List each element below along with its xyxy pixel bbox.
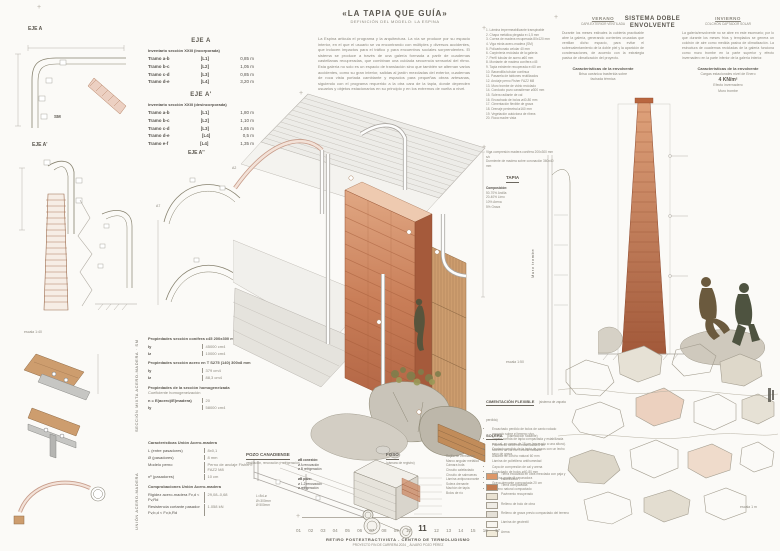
invierno-body: La galería/envolvente no se abre en este… [682, 31, 774, 61]
eje-a1-label: EJE A' [32, 142, 47, 149]
tramo-ref: [L1] [201, 56, 209, 62]
table-rows: Tramo a-b [L1] 0,85 m Tramo b-c [L2] 1,0… [148, 56, 254, 86]
scale-number: 17 [495, 528, 500, 533]
pozo-label: ø refrigeración [298, 486, 344, 491]
page-subtitle: DEFINICIÓN DEL MODELO: LA ESPINA [300, 19, 490, 25]
material-swatch [486, 484, 498, 491]
material-label: Relleno de bolo de obra [501, 502, 535, 507]
scale-number: 16 [483, 528, 488, 533]
solera-item: Pavimento de tierra estabilizada 8 cm [492, 443, 566, 448]
pozo-group2: øB pozo: ø 1-2 renovaciónø refrigeración [298, 477, 344, 491]
material-label: Arena [501, 530, 510, 535]
property-key: Iz [148, 351, 199, 357]
property-key: n = E(acero)/E(madera) [148, 398, 199, 404]
table-row: Tramo c-d [L3] 0,85 m [148, 72, 254, 78]
table-title: EJE A [148, 38, 254, 45]
registration-mark: + [37, 4, 41, 11]
table-row: Tramo b-c [L2] 1,05 m [148, 64, 254, 70]
tramo-ref: [L3] [201, 126, 209, 132]
table-row: Tramo d-e [L4] 3,20 m [148, 79, 254, 85]
tramo-ref: [L4] [202, 133, 210, 139]
tramo-name: Tramo b-c [148, 118, 170, 124]
page-title: «LA TAPIA QUE GUÍA» [300, 10, 490, 19]
solera-subtitle: (calefacción radiante) [507, 434, 537, 438]
material-label: Lámina de geotextil [501, 520, 529, 525]
tramo-value: 3,20 m [240, 79, 254, 85]
pozo-group1-lines: ø A renovaciónø B refrigeración [298, 463, 344, 472]
tramo-ref: [L4] [201, 79, 209, 85]
pozo-label: ø B refrigeración [298, 467, 344, 472]
tramo-name: Tramo e-f [148, 141, 168, 147]
pozo-group1: øB conexión: ø A renovaciónø B refrigera… [298, 458, 344, 472]
eje-a-label: EJE A [28, 26, 42, 33]
trombe-vertical-label: Muro trombe [530, 228, 535, 278]
union-row: nº (pasadores) 10 cm [148, 474, 260, 480]
tramo-ref: [L3] [201, 72, 209, 78]
union-comp-key: Rigidez acero-madera Fv,d < Fv,Rd [148, 492, 201, 503]
tramo-name: Tramo d-e [148, 133, 170, 139]
scale-note-mid: escala 1:50 [506, 360, 524, 365]
union-key: Ø (pasadores) [148, 455, 201, 461]
title-block: «LA TAPIA QUE GUÍA» DEFINICIÓN DEL MODEL… [300, 10, 490, 24]
verano-body: Durante los meses estivales la cubierta … [562, 31, 644, 61]
tramo-ref: [L4] [200, 141, 208, 147]
tramo-ref: [L1] [201, 110, 209, 116]
scale-number: 06 [357, 528, 362, 533]
union-side-label: UNIÓN ACERO-MADERA [134, 442, 139, 530]
tapia-title: TAPIA [506, 175, 519, 183]
material-label: Tierra compactada [501, 483, 527, 488]
solera-item: Mortero de cal con circuito radiante [492, 448, 566, 453]
material-label: Pavimento recuperado [501, 492, 533, 497]
property-key: Iy [148, 368, 199, 374]
union-key: nº (pasadores) [148, 474, 201, 480]
scale-number: 13 [446, 528, 451, 533]
pozo-dimension-label: Ø 500mm [256, 503, 292, 508]
eje-a2-label: EJE A'' [188, 150, 205, 157]
eje-a-table: EJE A Inventario sección XXIII (incorpor… [148, 38, 254, 87]
joint-detail-drawings [6, 340, 128, 530]
property-key: Iy [148, 344, 199, 350]
scale-number: 14 [458, 528, 463, 533]
sheet-caption: RETIRO POSTEXTRACTIVISTA - CENTRO DE TER… [290, 537, 506, 543]
scale-number: 15 [471, 528, 476, 533]
arc-label-a7: A7 [156, 204, 160, 209]
axonometric-model-drawing [233, 92, 500, 464]
scale-note-left: escala 1:40 [24, 330, 42, 335]
material-swatch [486, 511, 498, 518]
material-swatch [486, 502, 498, 509]
union-comp-title: Comprobaciones Unión Acero-madera [148, 484, 260, 490]
tramo-name: Tramo a-b [148, 56, 170, 62]
scale-number: 02 [308, 528, 313, 533]
numbered-legend: 1. Lámina impermeabilizante transpirable… [486, 28, 558, 121]
tramo-name: Tramo d-e [148, 79, 170, 85]
section-mixta-side-label: SECCIÓN MIXTA ACERO-MADERA · SM [134, 332, 139, 432]
cimentacion-title: CIMENTACIÓN FLEXIBLE [486, 399, 534, 406]
solera-item: Capa de compresión de cal y arena [492, 465, 566, 470]
scale-number: 01 [296, 528, 301, 533]
tramo-value: 1,05 m [240, 64, 254, 70]
tramo-name: Tramo a-b [148, 110, 170, 116]
union-key: L (entre pasadores) [148, 448, 201, 454]
scale-number: 12 [434, 528, 439, 533]
solera-title: SOLERA [486, 433, 503, 440]
invierno-char-line: Muro trombe [682, 89, 774, 94]
pozo-group3: L=8xLøØ=300mmØ 500mm [256, 494, 292, 508]
scale-number: 04 [333, 528, 338, 533]
scale-note-right: escala 1 m [740, 505, 757, 510]
invierno-column: INVIERNO COLCHÓN CAPTADOR SOLAR La galer… [682, 16, 774, 94]
scale-number: 05 [345, 528, 350, 533]
presentation-sheet: + + + + + + + + «LA TAPIA QUE GUÍA» DEFI… [0, 0, 780, 551]
table-subtitle: Inventario sección XXIII (incorporada) [148, 48, 254, 54]
tramo-value: 0,85 m [240, 56, 254, 62]
union-key: Modelo perno [148, 462, 201, 473]
solera-item: Lámina de polietileno antihumedad [492, 459, 566, 464]
pozo-group2-lines: ø 1-2 renovaciónø refrigeración [298, 482, 344, 491]
tramo-ref: [L2] [201, 64, 209, 70]
union-comp-rows: Rigidez acero-madera Fv,d < Fv,Rd 29,08–… [148, 492, 260, 516]
union-comp-key: Resistencia cortante pasador Fv,b,d < Fv… [148, 504, 201, 515]
property-key: Iy [148, 405, 199, 411]
solera-item: Aislante de corcho natural 60 mm [492, 454, 566, 459]
property-key: Iz [148, 375, 199, 381]
tramo-ref: [L2] [201, 118, 209, 124]
union-comp-row: Rigidez acero-madera Fv,d < Fv,Rd 29,08–… [148, 492, 260, 503]
sm-label: SM [54, 114, 61, 120]
verano-char-line: fachada térmica [562, 77, 644, 82]
scale-number: 08 [382, 528, 387, 533]
figure-left [699, 277, 730, 340]
tramo-value: 0,85 m [240, 72, 254, 78]
tramo-name: Tramo c-d [148, 126, 170, 132]
legend-entry: 20. Roca madre vista [486, 116, 558, 121]
eje-a-section-drawing [8, 34, 128, 139]
union-comp-row: Resistencia cortante pasador Fv,b,d < Fv… [148, 504, 260, 515]
scale-number: 03 [320, 528, 325, 533]
tapia-wall-section-drawing [40, 192, 140, 337]
sheet-scale-bar: 0102030405060708091011121314151617 [296, 524, 500, 533]
registration-mark: + [554, 14, 558, 21]
tramo-name: Tramo b-c [148, 64, 170, 70]
verano-char-lines: Brisa oceánica trasferida sobrefachada t… [562, 72, 644, 82]
table-row: Tramo a-b [L1] 0,85 m [148, 56, 254, 62]
scale-number: 09 [394, 528, 399, 533]
scale-number: 07 [369, 528, 374, 533]
sheet-subcaption: PROYECTO FIN DE CARRERA 2024 _ ÁLVARO PO… [290, 543, 506, 548]
scale-number: 10 [406, 528, 411, 533]
material-swatch [486, 473, 498, 480]
invierno-char-lines2: Efecto invernaderoMuro trombe [682, 83, 774, 93]
intro-paragraph: La Espina articula el programa y la arqu… [318, 36, 470, 92]
scale-number: 11 [418, 524, 426, 533]
invierno-subtitle: COLCHÓN CAPTADOR SOLAR [682, 22, 774, 27]
tramo-name: Tramo c-d [148, 72, 170, 78]
material-swatch [486, 493, 498, 500]
